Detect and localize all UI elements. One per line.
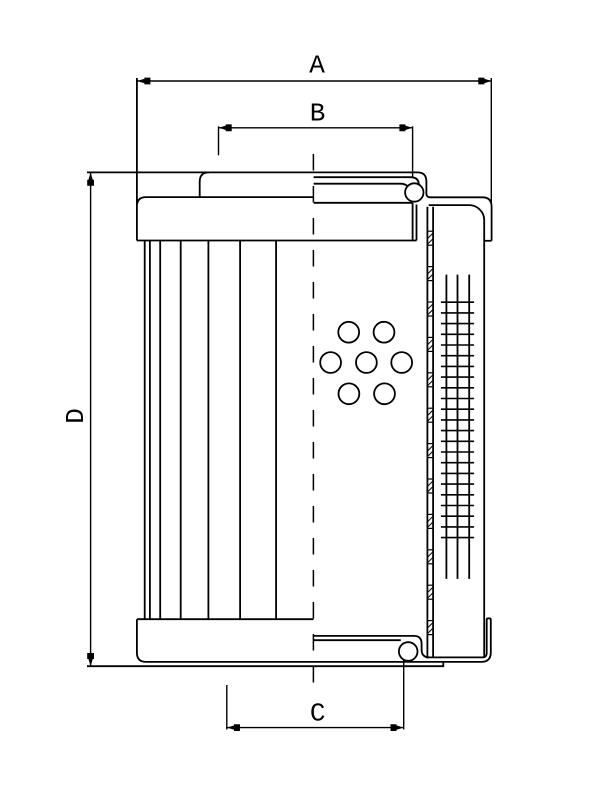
svg-text:C: C xyxy=(310,699,326,729)
svg-text:D: D xyxy=(61,408,91,424)
svg-text:B: B xyxy=(310,99,326,129)
svg-text:A: A xyxy=(309,51,325,81)
